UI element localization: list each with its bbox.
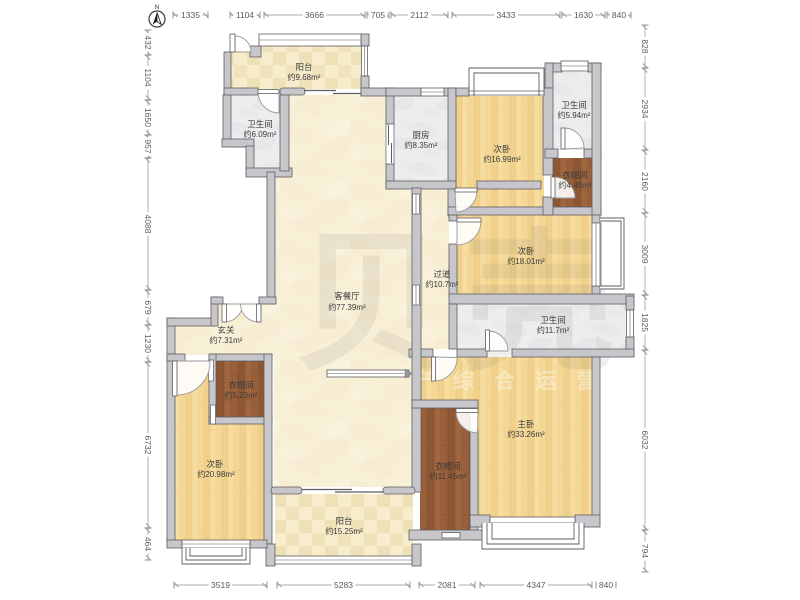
svg-text:828: 828: [640, 39, 650, 53]
svg-text:衣帽间: 衣帽间: [435, 461, 461, 471]
svg-text:衣帽间: 衣帽间: [228, 380, 254, 390]
svg-text:客餐厅: 客餐厅: [334, 291, 360, 301]
svg-text:衣帽间: 衣帽间: [562, 170, 588, 180]
svg-text:约6.09m²: 约6.09m²: [244, 129, 277, 139]
svg-text:3519: 3519: [211, 580, 230, 590]
svg-text:约16.99m²: 约16.99m²: [483, 154, 521, 164]
svg-text:N: N: [155, 4, 160, 11]
svg-text:约11.7m²: 约11.7m²: [537, 325, 570, 335]
svg-text:次卧: 次卧: [517, 246, 535, 256]
svg-text:玄关: 玄关: [217, 325, 235, 335]
svg-text:2934: 2934: [640, 100, 650, 119]
svg-text:约11.45m²: 约11.45m²: [430, 471, 467, 481]
svg-text:主卧: 主卧: [517, 419, 535, 429]
svg-text:3666: 3666: [305, 10, 324, 20]
svg-text:1825: 1825: [640, 313, 650, 332]
svg-text:5283: 5283: [334, 580, 353, 590]
svg-text:约18.01m²: 约18.01m²: [507, 256, 545, 266]
svg-text:4347: 4347: [527, 580, 546, 590]
svg-text:阳台: 阳台: [335, 516, 352, 526]
svg-text:约10.7m²: 约10.7m²: [426, 279, 459, 289]
svg-text:厨房: 厨房: [412, 130, 429, 140]
svg-text:次卧: 次卧: [206, 459, 224, 469]
svg-text:1650: 1650: [143, 108, 153, 127]
svg-text:约8.35m²: 约8.35m²: [405, 140, 438, 150]
svg-text:432: 432: [143, 35, 153, 49]
svg-text:1630: 1630: [574, 10, 593, 20]
svg-text:约20.98m²: 约20.98m²: [197, 469, 235, 479]
svg-text:3433: 3433: [497, 10, 516, 20]
svg-text:阳台: 阳台: [295, 62, 312, 72]
svg-text:1104: 1104: [236, 10, 255, 20]
svg-text:2160: 2160: [640, 172, 650, 191]
svg-text:约33.26m²: 约33.26m²: [507, 429, 545, 439]
svg-text:约15.25m²: 约15.25m²: [325, 526, 363, 536]
svg-text:次卧: 次卧: [493, 144, 511, 154]
svg-text:679: 679: [143, 300, 153, 314]
svg-text:约4.49m²: 约4.49m²: [559, 180, 592, 190]
svg-text:6032: 6032: [640, 431, 650, 450]
svg-text:794: 794: [640, 544, 650, 558]
svg-text:约7.31m²: 约7.31m²: [210, 335, 243, 345]
svg-text:过道: 过道: [433, 269, 451, 279]
svg-text:2112: 2112: [410, 10, 429, 20]
svg-text:卫生间: 卫生间: [247, 119, 273, 129]
svg-text:464: 464: [143, 537, 153, 551]
svg-text:6732: 6732: [143, 436, 153, 455]
svg-text:840: 840: [599, 580, 613, 590]
svg-text:约5.94m²: 约5.94m²: [558, 110, 591, 120]
svg-text:705: 705: [371, 10, 385, 20]
svg-text:840: 840: [612, 10, 626, 20]
svg-text:卫生间: 卫生间: [540, 315, 566, 325]
svg-text:约77.39m²: 约77.39m²: [328, 302, 366, 312]
svg-text:卫生间: 卫生间: [561, 100, 587, 110]
svg-text:约9.68m²: 约9.68m²: [288, 72, 321, 82]
svg-text:2081: 2081: [438, 580, 457, 590]
svg-text:3009: 3009: [640, 245, 650, 264]
svg-text:4088: 4088: [143, 215, 153, 234]
svg-text:1230: 1230: [143, 334, 153, 353]
svg-text:957: 957: [143, 139, 153, 153]
svg-text:1104: 1104: [143, 68, 153, 87]
svg-text:约5.23m²: 约5.23m²: [225, 390, 258, 400]
svg-text:1335: 1335: [181, 10, 200, 20]
